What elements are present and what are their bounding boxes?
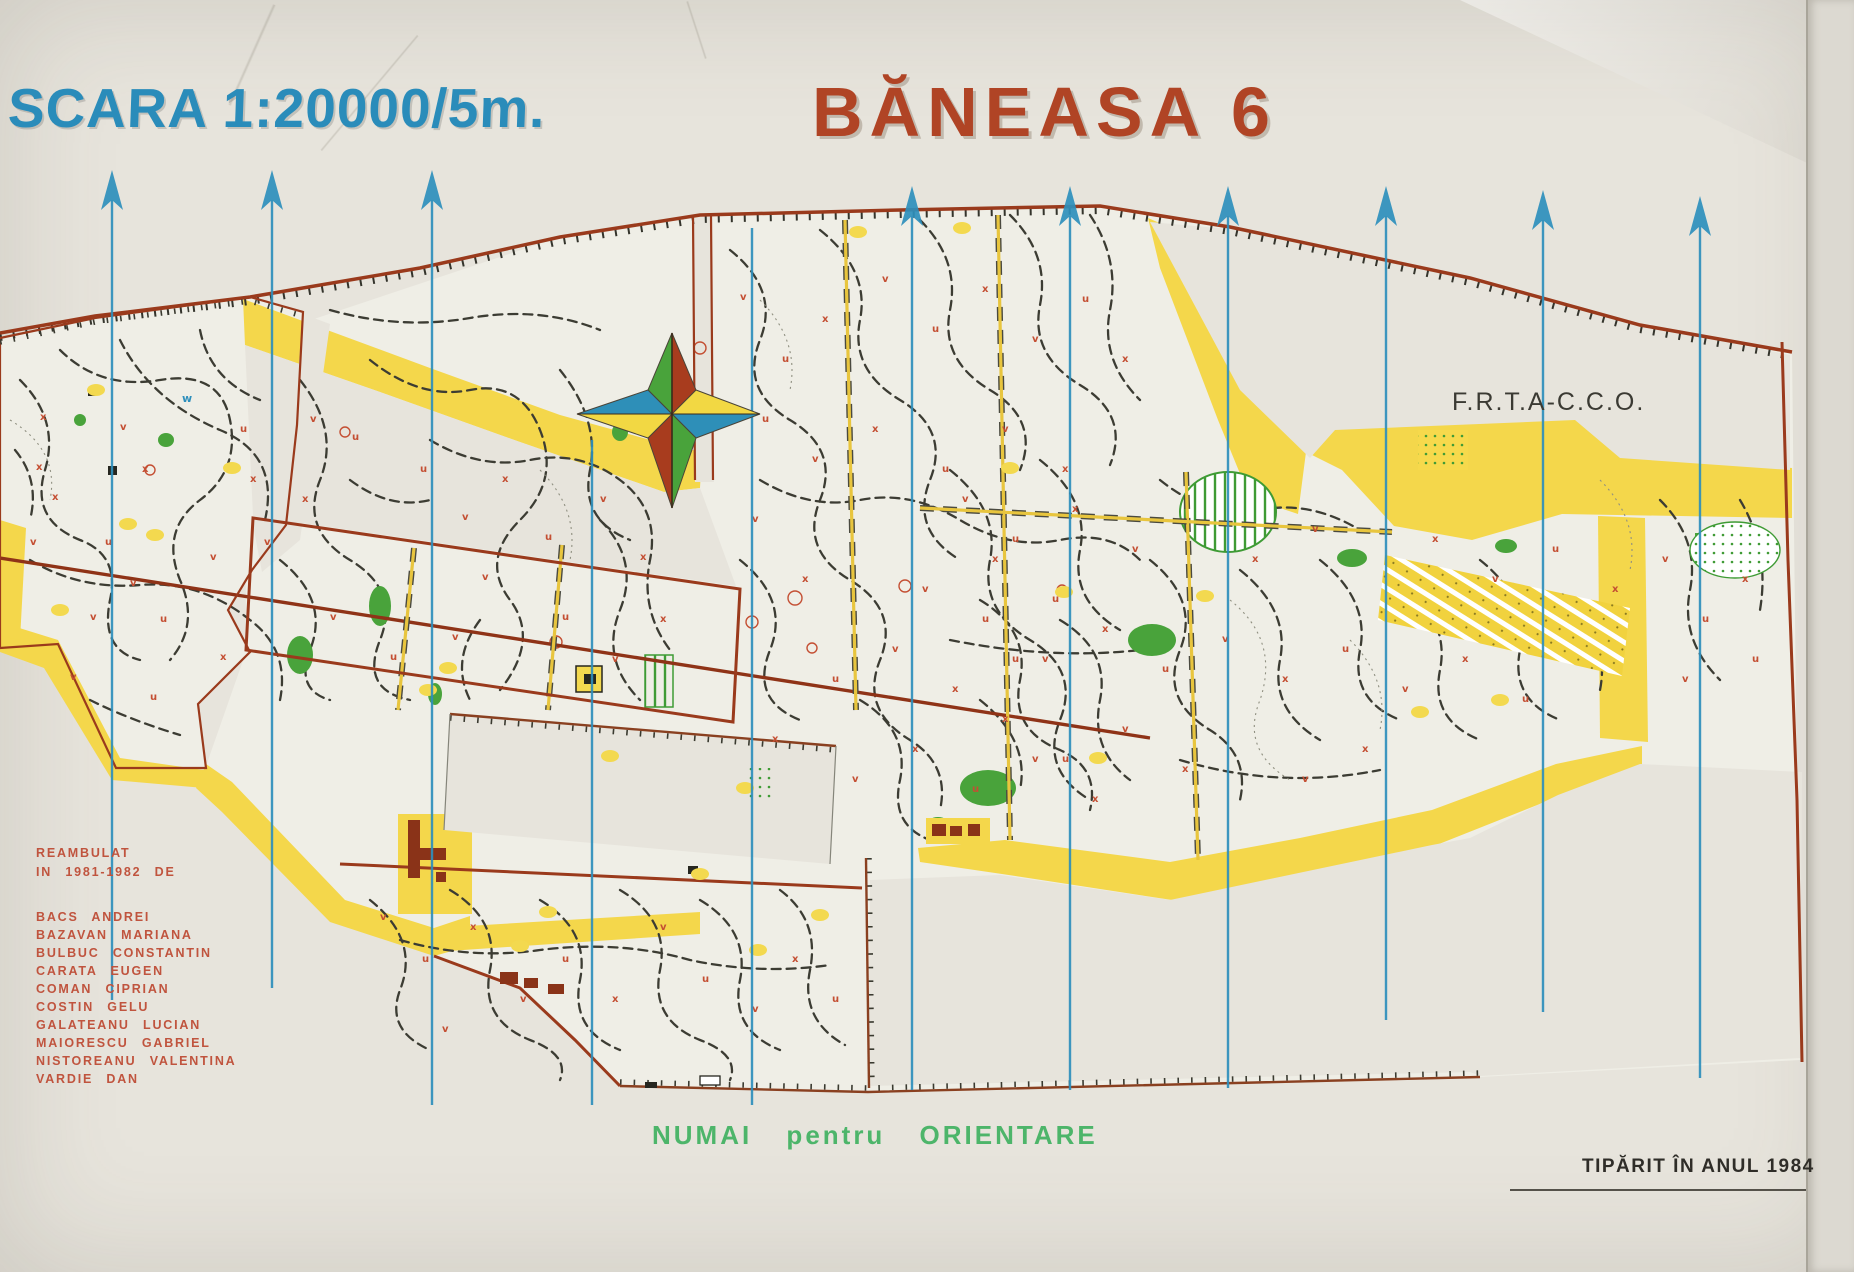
svg-text:u: u — [1522, 694, 1529, 705]
svg-text:x: x — [36, 462, 43, 473]
svg-text:u: u — [942, 464, 949, 475]
usage-note: NUMAI pentru ORIENTARE — [652, 1120, 1098, 1151]
svg-text:v: v — [380, 912, 387, 923]
credit-name: COMAN CIPRIAN — [36, 980, 296, 998]
svg-text:v: v — [520, 994, 527, 1005]
credit-name: BAZAVAN MARIANA — [36, 926, 296, 944]
svg-text:u: u — [702, 974, 709, 985]
credit-name: BACS ANDREI — [36, 908, 296, 926]
svg-text:x: x — [822, 314, 829, 325]
svg-text:v: v — [1032, 334, 1039, 345]
svg-text:x: x — [952, 684, 959, 695]
svg-text:x: x — [250, 474, 257, 485]
svg-text:v: v — [442, 1024, 449, 1035]
svg-text:v: v — [892, 644, 899, 655]
svg-text:v: v — [120, 422, 127, 433]
svg-text:v: v — [812, 454, 819, 465]
credit-name: CARATA EUGEN — [36, 962, 296, 980]
svg-text:x: x — [302, 494, 309, 505]
credits-block: REAMBULAT IN 1981-1982 DE BACS ANDREIBAZ… — [36, 844, 296, 1088]
svg-text:x: x — [1102, 624, 1109, 635]
svg-text:u: u — [1062, 754, 1069, 765]
svg-text:v: v — [852, 774, 859, 785]
svg-text:x: x — [1282, 674, 1289, 685]
svg-text:u: u — [1162, 664, 1169, 675]
svg-text:u: u — [1012, 534, 1019, 545]
svg-text:v: v — [1402, 684, 1409, 695]
svg-text:x: x — [792, 954, 799, 965]
svg-text:v: v — [130, 578, 137, 589]
svg-text:u: u — [390, 652, 397, 663]
svg-text:v: v — [30, 537, 37, 548]
clearing-dotted-blob — [1690, 522, 1780, 578]
water-mark: w — [182, 392, 192, 405]
svg-text:v: v — [482, 572, 489, 583]
credits-heading-line2: IN 1981-1982 DE — [36, 863, 296, 882]
svg-text:v: v — [330, 612, 337, 623]
credit-name: COSTIN GELU — [36, 998, 296, 1016]
credit-name: NISTOREANU VALENTINA — [36, 1052, 296, 1070]
svg-text:v: v — [1032, 754, 1039, 765]
svg-text:u: u — [562, 612, 569, 623]
svg-text:x: x — [1252, 554, 1259, 565]
svg-text:v: v — [962, 494, 969, 505]
svg-text:u: u — [545, 532, 552, 543]
credit-name: MAIORESCU GABRIEL — [36, 1034, 296, 1052]
svg-text:v: v — [70, 672, 77, 683]
svg-text:u: u — [1342, 644, 1349, 655]
svg-text:u: u — [1052, 594, 1059, 605]
svg-text:u: u — [420, 464, 427, 475]
svg-text:x: x — [1362, 744, 1369, 755]
svg-text:v: v — [1132, 544, 1139, 555]
svg-text:v: v — [740, 292, 747, 303]
svg-text:x: x — [40, 412, 47, 423]
svg-text:u: u — [832, 994, 839, 1005]
svg-text:v: v — [1682, 674, 1689, 685]
svg-text:v: v — [1492, 574, 1499, 585]
svg-text:x: x — [802, 574, 809, 585]
credit-name: VARDIE DAN — [36, 1070, 296, 1088]
svg-text:x: x — [1122, 354, 1129, 365]
svg-text:x: x — [1072, 504, 1079, 515]
svg-text:v: v — [90, 612, 97, 623]
print-year-note: TIPĂRIT ÎN ANUL 1984 — [1582, 1156, 1815, 1178]
svg-text:v: v — [452, 632, 459, 643]
svg-text:x: x — [992, 554, 999, 565]
svg-text:v: v — [1122, 724, 1129, 735]
svg-text:u: u — [982, 614, 989, 625]
svg-text:u: u — [1082, 294, 1089, 305]
svg-text:x: x — [1002, 714, 1009, 725]
svg-text:u: u — [160, 614, 167, 625]
svg-text:x: x — [52, 492, 59, 503]
scale-title: SCARA 1:20000/5m. — [7, 76, 547, 140]
svg-text:v: v — [462, 512, 469, 523]
scanned-orienteering-map-sheet: w xxvvxvuvuvuxvxxvuvuxuvxuvxvuvuvxvvuxvu… — [0, 0, 1854, 1272]
svg-text:x: x — [1092, 794, 1099, 805]
svg-text:u: u — [1012, 654, 1019, 665]
svg-text:u: u — [782, 354, 789, 365]
svg-text:v: v — [1002, 424, 1009, 435]
svg-text:x: x — [612, 994, 619, 1005]
svg-text:x: x — [1182, 764, 1189, 775]
credits-heading-line1: REAMBULAT — [36, 844, 296, 863]
svg-text:u: u — [832, 674, 839, 685]
svg-text:v: v — [1312, 524, 1319, 535]
svg-text:u: u — [562, 954, 569, 965]
svg-text:v: v — [882, 274, 889, 285]
credit-name: GALATEANU LUCIAN — [36, 1016, 296, 1034]
svg-text:v: v — [1042, 654, 1049, 665]
svg-text:u: u — [240, 424, 247, 435]
svg-text:v: v — [1662, 554, 1669, 565]
svg-text:u: u — [1752, 654, 1759, 665]
svg-text:u: u — [762, 414, 769, 425]
svg-text:u: u — [1552, 544, 1559, 555]
svg-text:x: x — [502, 474, 509, 485]
svg-text:v: v — [612, 654, 619, 665]
svg-text:x: x — [772, 734, 779, 745]
svg-text:u: u — [422, 954, 429, 965]
credits-names-list: BACS ANDREIBAZAVAN MARIANABULBUC CONSTAN… — [36, 908, 296, 1088]
map-title: BĂNEASA 6 — [812, 72, 1277, 152]
svg-text:v: v — [210, 552, 217, 563]
svg-text:x: x — [1462, 654, 1469, 665]
svg-text:x: x — [1612, 584, 1619, 595]
svg-text:v: v — [600, 494, 607, 505]
svg-text:v: v — [1302, 774, 1309, 785]
svg-text:x: x — [1062, 464, 1069, 475]
svg-text:u: u — [932, 324, 939, 335]
svg-text:x: x — [982, 284, 989, 295]
svg-text:x: x — [872, 424, 879, 435]
svg-text:v: v — [660, 922, 667, 933]
svg-text:x: x — [660, 614, 667, 625]
svg-text:x: x — [1432, 534, 1439, 545]
svg-text:x: x — [142, 464, 149, 475]
svg-text:u: u — [1702, 614, 1709, 625]
svg-text:u: u — [150, 692, 157, 703]
svg-text:u: u — [352, 432, 359, 443]
svg-text:u: u — [972, 784, 979, 795]
svg-text:x: x — [1742, 574, 1749, 585]
svg-text:x: x — [640, 552, 647, 563]
svg-text:v: v — [922, 584, 929, 595]
svg-text:x: x — [220, 652, 227, 663]
credit-name: BULBUC CONSTANTIN — [36, 944, 296, 962]
organization-label: F.R.T.A-C.C.O. — [1452, 388, 1645, 417]
svg-text:x: x — [470, 922, 477, 933]
svg-text:v: v — [310, 414, 317, 425]
svg-text:v: v — [264, 537, 271, 548]
